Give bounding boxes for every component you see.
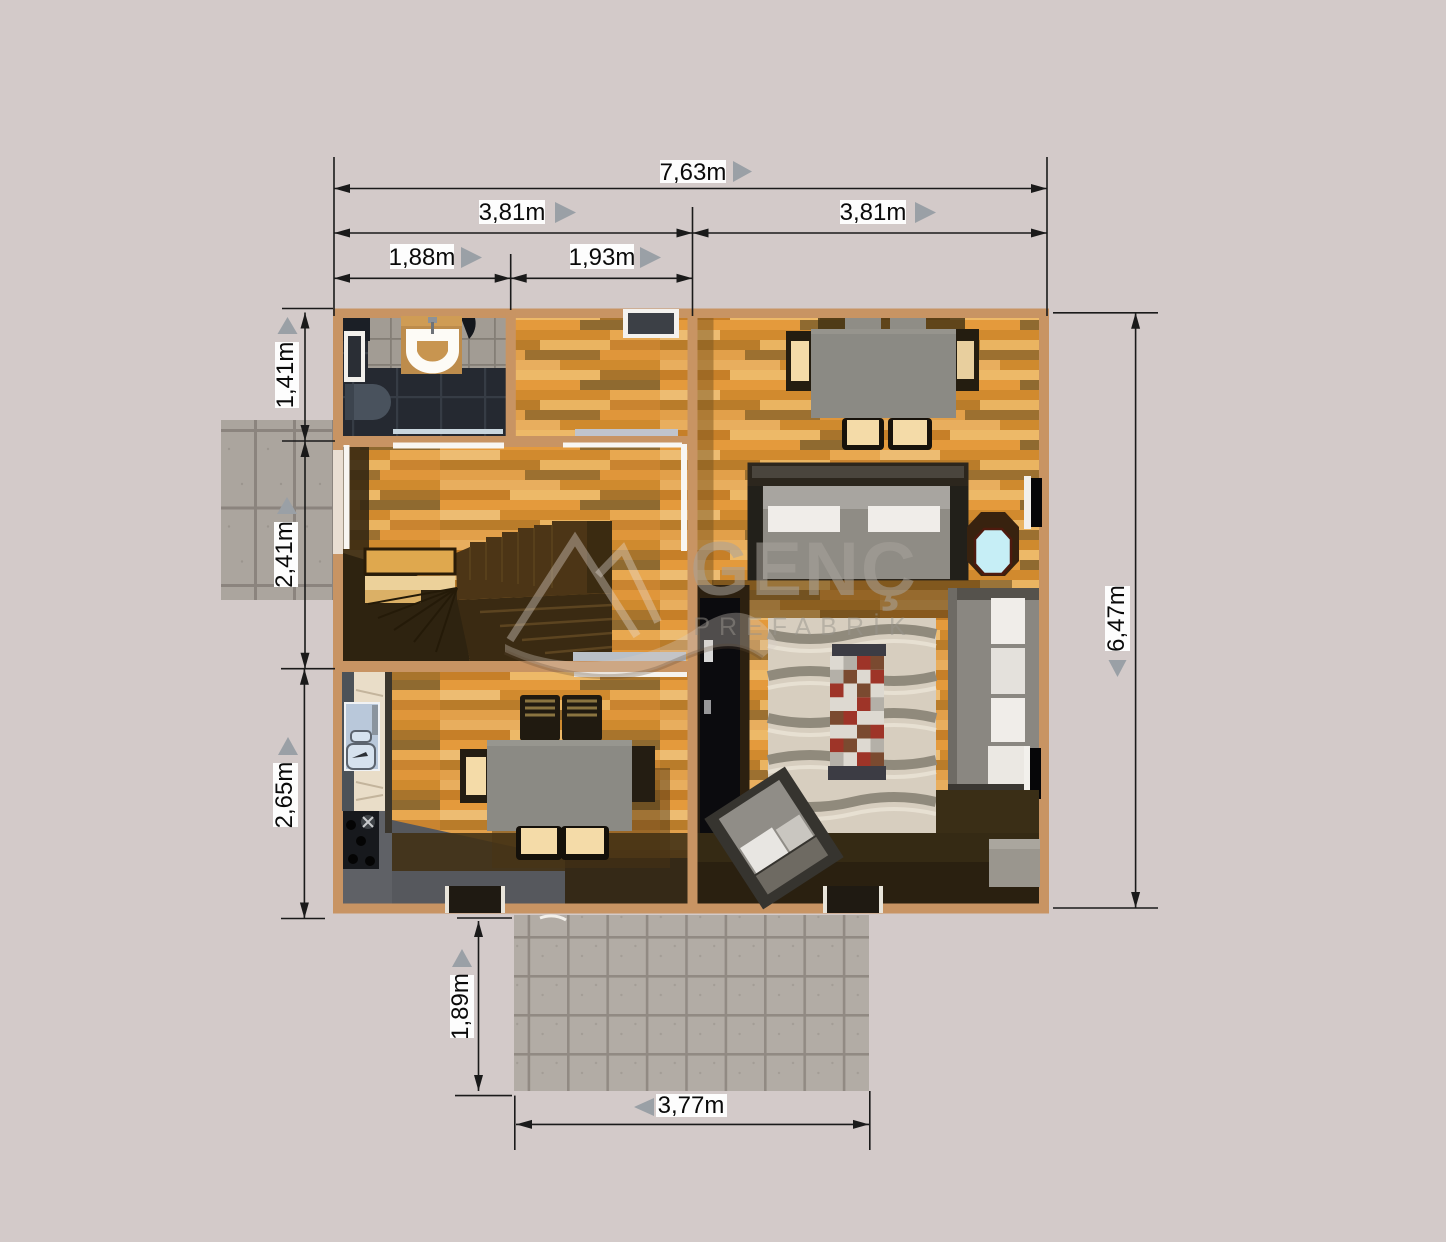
svg-text:3,81m: 3,81m: [840, 199, 907, 226]
svg-text:6,47m: 6,47m: [1103, 585, 1130, 652]
svg-text:1,88m: 1,88m: [389, 244, 456, 271]
svg-text:3,77m: 3,77m: [658, 1092, 725, 1119]
svg-text:7,63m: 7,63m: [660, 159, 727, 186]
svg-text:2,65m: 2,65m: [271, 762, 298, 829]
svg-text:1,41m: 1,41m: [272, 342, 299, 409]
svg-text:3,81m: 3,81m: [479, 199, 546, 226]
svg-text:1,89m: 1,89m: [447, 973, 474, 1040]
svg-text:GENÇ: GENÇ: [690, 527, 918, 612]
svg-text:1,93m: 1,93m: [569, 244, 636, 271]
svg-text:PREFABRİK: PREFABRİK: [693, 612, 914, 641]
svg-text:2,41m: 2,41m: [271, 521, 298, 588]
